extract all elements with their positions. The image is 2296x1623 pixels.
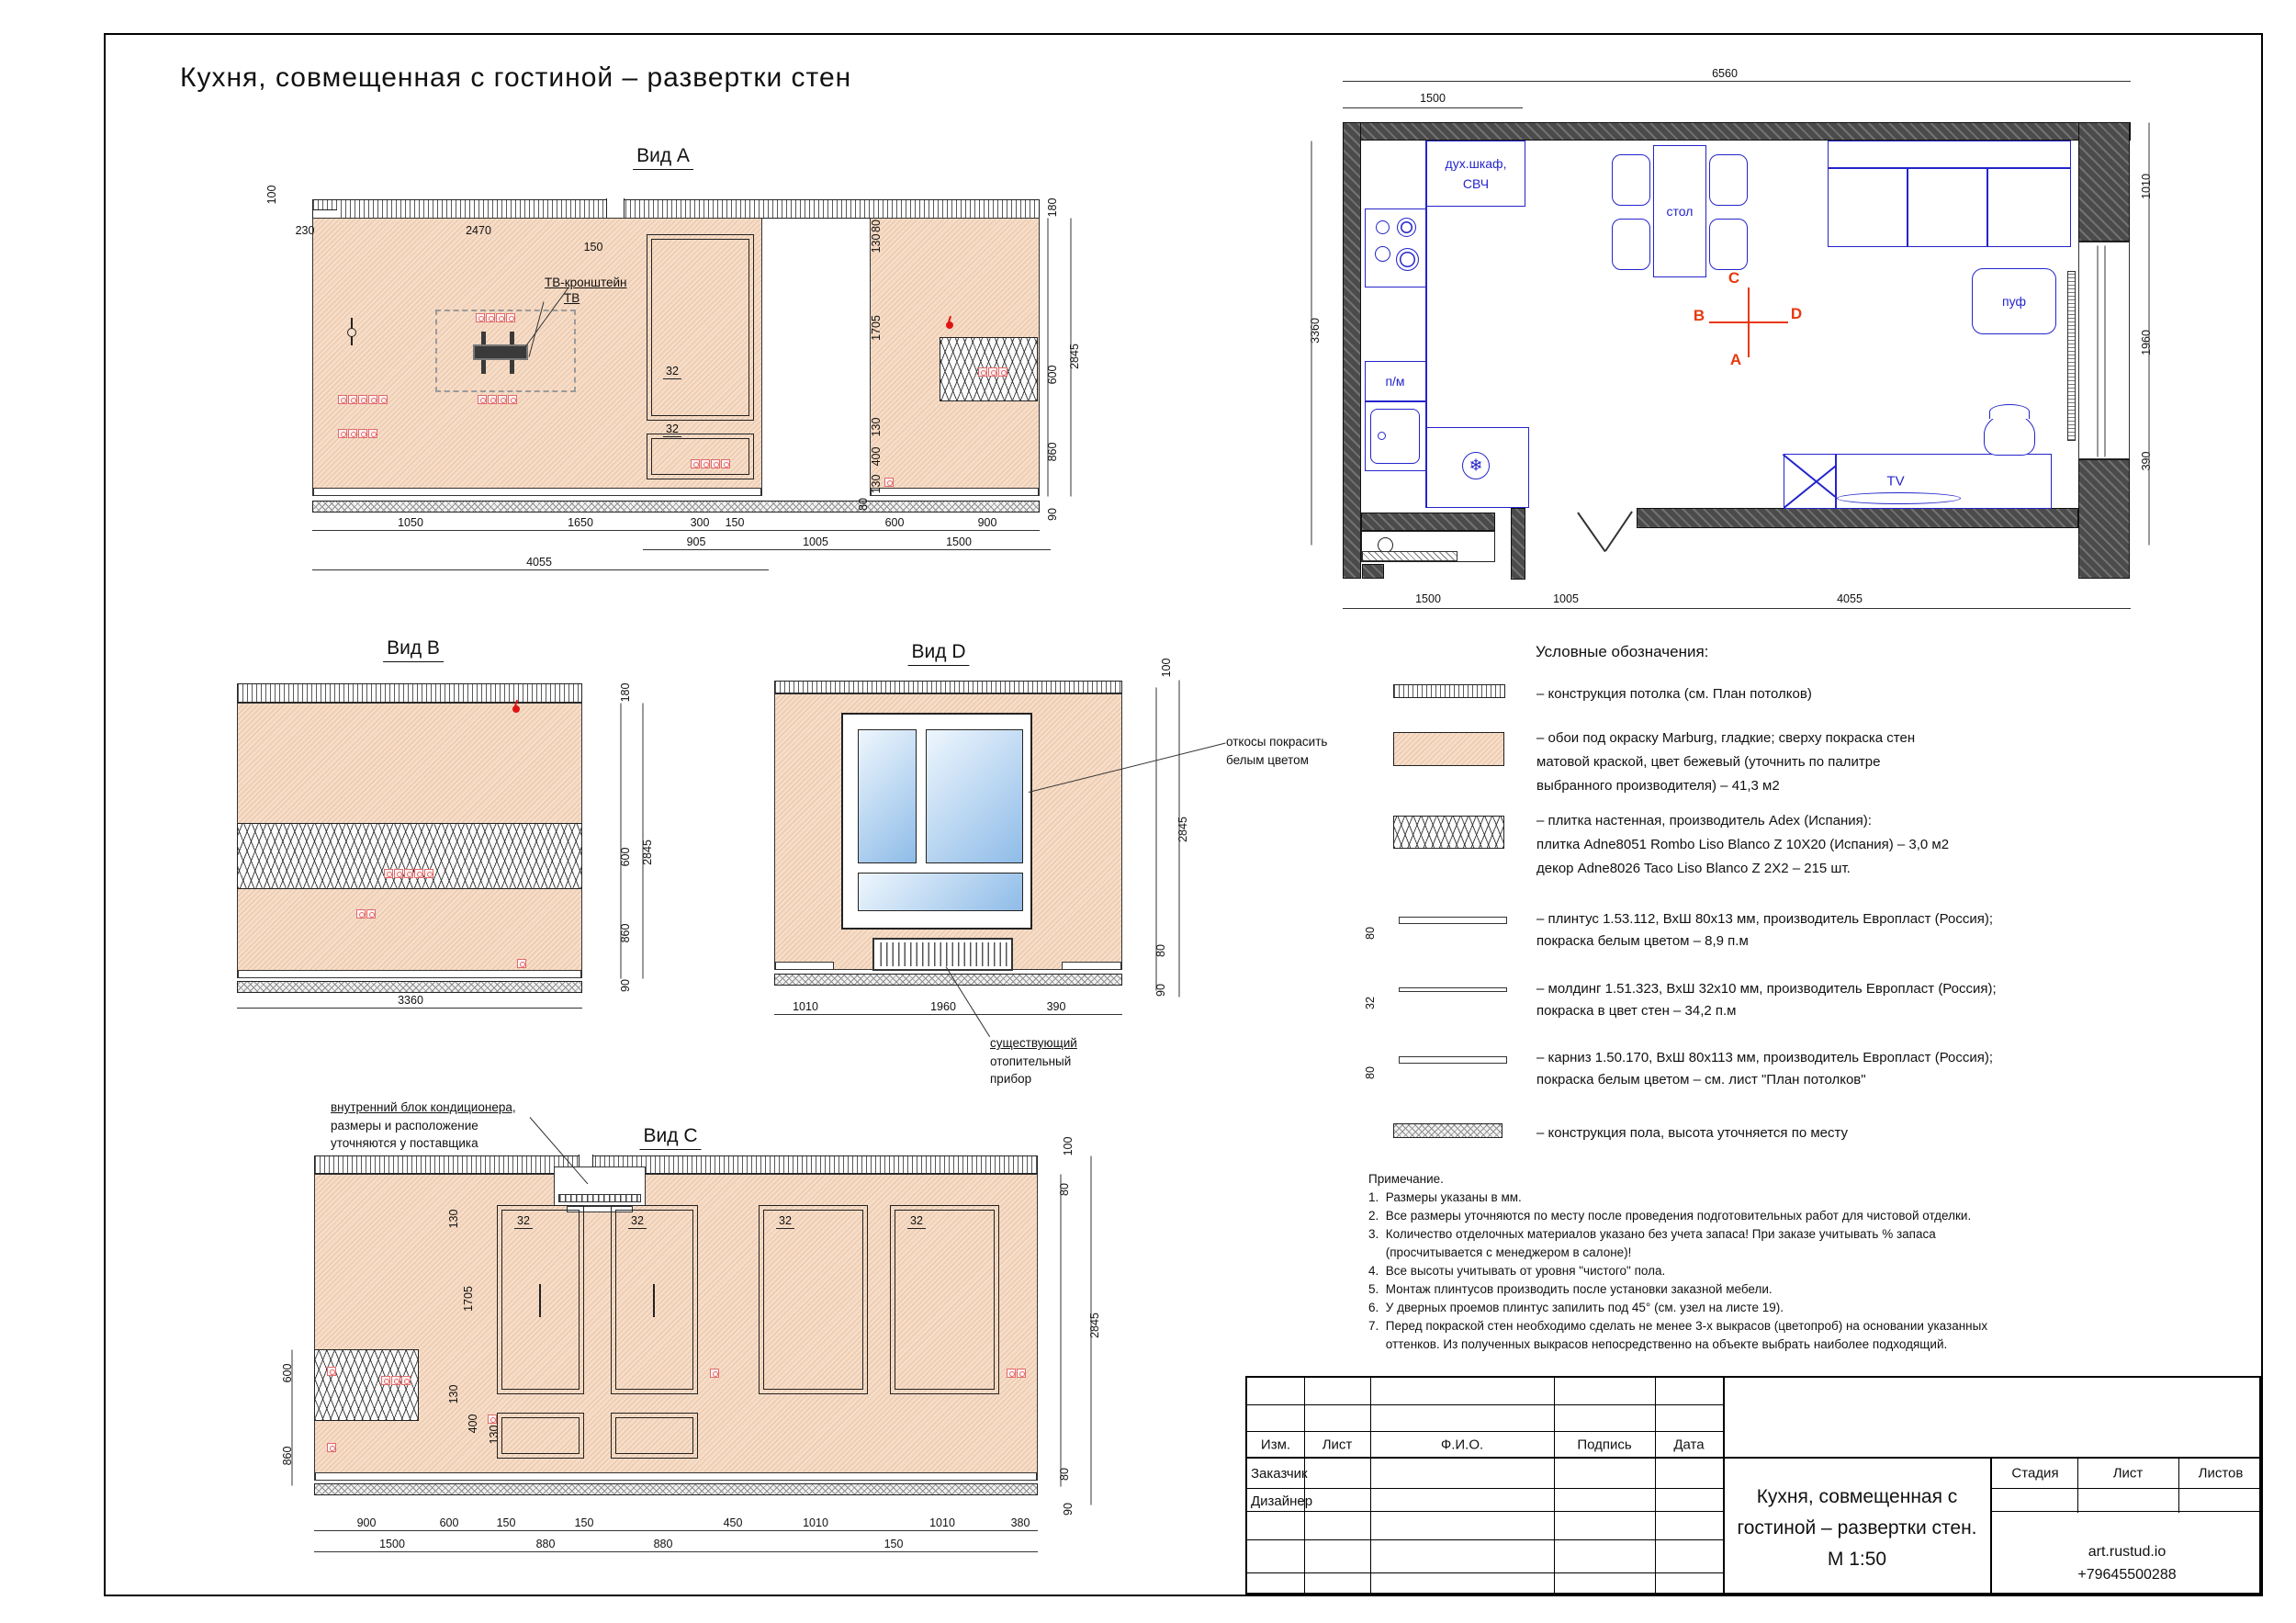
dim-label: 1010 (803, 1517, 828, 1528)
dim-label: 1705 (871, 315, 882, 341)
plan-chair (1612, 219, 1650, 270)
tb-list2: Лист (2113, 1466, 2144, 1482)
tb-project-title-1: Кухня, совмещенная с (1757, 1486, 1958, 1508)
plan-wall-left (1343, 122, 1361, 579)
dim-line (1343, 107, 1523, 108)
orientation-right: D (1791, 305, 1802, 323)
notes-block: Примечание.1. Размеры указаны в мм.2. Вс… (1368, 1170, 1987, 1354)
dim-label: 900 (357, 1517, 377, 1528)
dim-label: 80 (871, 220, 882, 232)
tb-izm: Изм. (1261, 1437, 1290, 1453)
legend-swatch-floor (1393, 1123, 1503, 1138)
view-b-floor (237, 981, 582, 993)
dim-line (1343, 81, 2131, 82)
legend-item: – карниз 1.50.170, ВхШ 80x113 мм, произв… (1536, 1047, 1993, 1091)
tb-list: Лист (1322, 1437, 1353, 1453)
dim-label: 1010 (2141, 174, 2152, 199)
view-b-ceiling (237, 683, 582, 703)
molding-frame (497, 1205, 584, 1394)
dim-label: 1960 (2141, 330, 2152, 355)
dim-label: 860 (1047, 443, 1058, 462)
dim-label: 860 (620, 924, 631, 943)
dim-label: 600 (440, 1517, 459, 1528)
plan-stool-back (1989, 404, 2030, 419)
socket-group (384, 869, 433, 878)
view-a-ceiling (312, 199, 1040, 219)
plan-table-label: стол (1667, 204, 1694, 219)
socket-group (978, 367, 1007, 377)
plan-stove (1365, 209, 1426, 287)
dim-label: 180 (620, 683, 631, 703)
tb-project-title-2: гостиной – развертки стен. (1737, 1517, 1976, 1539)
socket-group (381, 1376, 411, 1385)
socket-group (338, 395, 388, 404)
view-a-ceiling-slot (606, 198, 625, 219)
legend-item: – молдинг 1.51.323, ВхШ 32x10 мм, произв… (1536, 978, 1997, 1022)
tb-phone: +79645500288 (2077, 1567, 2176, 1584)
dim-label: 1010 (793, 1001, 818, 1012)
tb-listov: Листов (2199, 1466, 2244, 1482)
paint-marker-icon (512, 705, 520, 713)
tb-scale: М 1:50 (1828, 1549, 1886, 1571)
tb-dizainer: Дизайнер (1251, 1493, 1312, 1509)
dim-label: 80 (858, 498, 869, 511)
tb-fio: Ф.И.О. (1441, 1437, 1483, 1453)
dim-label: 400 (467, 1414, 478, 1434)
socket-group (710, 1369, 719, 1378)
plan-wall-top (1343, 122, 2131, 141)
dim-line (1061, 1175, 1062, 1487)
socket-group (1007, 1369, 1026, 1378)
dim-label: 2470 (466, 225, 491, 236)
dim-label: 600 (1047, 366, 1058, 385)
plan-window-glass (2098, 246, 2099, 457)
dim-line (774, 1014, 1122, 1015)
view-c-floor (314, 1483, 1038, 1495)
window-pane-right (926, 729, 1023, 863)
molding-frame (611, 1205, 698, 1394)
dim-label: 6560 (1712, 68, 1738, 79)
molding-frame (497, 1413, 584, 1459)
legend-item: – конструкция пола, высота уточняется по… (1536, 1122, 1848, 1144)
dim-label: 600 (620, 848, 631, 867)
orientation-down: A (1730, 351, 1741, 369)
plan-sofa-divider (1907, 167, 1908, 247)
view-d-plinth-right (1062, 962, 1121, 970)
dim-label: 150 (726, 517, 745, 528)
dim-label: 130 (871, 475, 882, 494)
stove-burner (1376, 220, 1390, 234)
molding-frame (647, 234, 754, 421)
plan-oven-label-1: дух.шкаф, (1446, 156, 1507, 171)
plan-tv-screen (1837, 492, 1961, 504)
dim-label: 80 (1365, 927, 1376, 940)
view-c-ceiling (314, 1155, 1038, 1174)
dim-label: 150 (497, 1517, 516, 1528)
molding-size-label: 32 (907, 1214, 926, 1229)
tb-data: Дата (1673, 1437, 1704, 1453)
socket-group (327, 1443, 336, 1452)
dim-label: 880 (536, 1538, 556, 1550)
dim-label: 390 (1047, 1001, 1066, 1012)
socket-group (356, 909, 376, 919)
dim-line (312, 569, 769, 570)
plan-wall-bottom-left (1361, 513, 1495, 531)
tb-zakazchik: Заказчик (1251, 1466, 1308, 1482)
molding-size-label: 32 (663, 365, 681, 379)
dim-label: 1010 (929, 1517, 955, 1528)
plan-sink-drain (1378, 432, 1386, 440)
dim-label: 1650 (568, 517, 593, 528)
molding-size-label: 32 (663, 423, 681, 437)
legend-item: – конструкция потолка (см. План потолков… (1536, 682, 1812, 706)
dim-line (314, 1530, 1038, 1531)
plan-radiator (2067, 271, 2076, 441)
dim-label: 600 (885, 517, 905, 528)
ac-unit-louver (558, 1194, 641, 1202)
tv-bracket-label: ТВ-кронштейн (545, 274, 627, 292)
dim-line (1156, 688, 1157, 991)
dim-label: 80 (1155, 944, 1166, 957)
dim-label: 1705 (463, 1286, 474, 1312)
dim-label: 380 (1011, 1517, 1030, 1528)
tb-site: art.rustud.io (2088, 1544, 2166, 1561)
dim-line (643, 549, 1051, 550)
dim-label: 1005 (803, 536, 828, 547)
window-pane-bottom (858, 873, 1023, 911)
dim-label: 3360 (398, 995, 423, 1006)
plan-chair (1709, 219, 1748, 270)
plan-dishwasher-label: п/м (1385, 374, 1404, 389)
plan-oven-cabinet (1426, 141, 1525, 207)
legend-item: – плинтус 1.53.112, ВхШ 80x13 мм, произв… (1536, 908, 1993, 952)
dim-line (314, 1551, 1038, 1552)
paint-marker-icon (946, 321, 953, 329)
dim-label: 1005 (1553, 593, 1579, 604)
plan-chair (1709, 154, 1748, 206)
view-d-ceiling (774, 681, 1122, 693)
legend-swatch-cornice (1399, 1056, 1507, 1064)
legend-swatch-wallpaper (1393, 732, 1504, 766)
dim-label: 1050 (398, 517, 423, 528)
switch-icon (351, 318, 353, 345)
dim-line (1048, 219, 1049, 497)
dim-label: 90 (1063, 1503, 1074, 1516)
tb-stadiya: Стадия (2011, 1466, 2058, 1482)
dim-line (312, 530, 1040, 531)
dim-line (1311, 141, 1312, 546)
plan-sofa (1828, 141, 2071, 247)
dim-label: 100 (266, 186, 277, 205)
orientation-up: C (1728, 269, 1739, 287)
molding-frame (890, 1205, 999, 1394)
dim-label: 900 (978, 517, 997, 528)
dim-label: 150 (584, 242, 603, 253)
dim-line (237, 1008, 582, 1009)
molding-size-label: 32 (628, 1214, 647, 1229)
title-block: Изм. Лист Ф.И.О. Подпись Дата Заказчик Д… (1245, 1376, 2261, 1595)
stove-burner (1375, 246, 1390, 262)
socket-group (327, 1367, 336, 1376)
plan-wall-bottom-right (1637, 508, 2078, 528)
dim-label: 4055 (526, 557, 552, 568)
dim-label: 905 (687, 536, 706, 547)
dim-label: 130 (448, 1210, 459, 1229)
plan-chair (1612, 154, 1650, 206)
view-c-plinth (315, 1472, 1037, 1481)
socket-group (884, 478, 894, 487)
dim-label: 32 (1365, 997, 1376, 1009)
plan-pouf-label: пуф (2002, 294, 2026, 309)
view-c-tile (314, 1349, 419, 1421)
dim-label: 880 (654, 1538, 673, 1550)
molding-frame (759, 1205, 868, 1394)
orientation-left: B (1694, 307, 1705, 325)
dim-label: 150 (884, 1538, 904, 1550)
dim-label: 2845 (642, 840, 653, 865)
view-d-plinth-left (775, 962, 834, 970)
dim-line (292, 1350, 293, 1486)
plan-stool (1984, 413, 2035, 456)
socket-group (488, 1414, 497, 1424)
dim-line (2149, 123, 2150, 546)
tv-console-div (1835, 454, 1837, 509)
dim-label: 150 (575, 1517, 594, 1528)
view-a-plinth-right (871, 488, 1039, 496)
dim-label: 100 (1161, 659, 1172, 678)
slopes-annotation: откосы покраситьбелым цветом (1226, 733, 1327, 769)
dim-label: 390 (2141, 452, 2152, 471)
page-title: Кухня, совмещенная с гостиной – развертк… (180, 62, 851, 94)
dim-line (1179, 681, 1180, 997)
dim-label: 230 (296, 225, 315, 236)
legend-item: – плитка настенная, производитель Adex (… (1536, 809, 1949, 881)
view-c-title: Вид C (640, 1125, 702, 1150)
socket-group (478, 395, 517, 404)
view-a-floor (312, 501, 1040, 513)
stove-burner (1397, 218, 1416, 237)
orientation-axis-line (1709, 321, 1788, 323)
dim-label: 100 (1063, 1137, 1074, 1156)
dim-label: 4055 (1837, 593, 1863, 604)
dim-label: 300 (691, 517, 710, 528)
dim-label: 130 (448, 1385, 459, 1404)
molding-size-label: 32 (776, 1214, 794, 1229)
dim-label: 1500 (946, 536, 972, 547)
legend-swatch-ceiling (1393, 684, 1505, 698)
drawing-sheet: Кухня, совмещенная с гостиной – развертк… (0, 0, 2296, 1623)
plan-sofa-divider (1986, 167, 1988, 247)
plan-pier-right-bottom (2078, 459, 2130, 579)
dim-line (1071, 219, 1072, 497)
plan-sofa-back (1828, 167, 2071, 169)
plan-pier-right-top (2078, 122, 2130, 242)
view-b-title: Вид B (383, 637, 444, 662)
plan-oven-label-2: СВЧ (1463, 176, 1489, 191)
dim-line (1091, 1156, 1092, 1505)
plan-pier-mid (1511, 508, 1525, 580)
window-pane-left (858, 729, 917, 863)
view-a-plinth-left (313, 488, 761, 496)
socket-group (476, 313, 515, 322)
molding-frame (647, 434, 754, 479)
tb-podpis: Подпись (1577, 1437, 1631, 1453)
socket-group (338, 429, 377, 438)
dim-line (643, 704, 644, 979)
dim-label: 180 (1047, 198, 1058, 218)
dim-label: 90 (1047, 508, 1058, 521)
ac-annotation: внутренний блок кондиционера,размеры и р… (331, 1099, 516, 1153)
legend-swatch-molding (1399, 987, 1507, 992)
stove-burner (1396, 248, 1419, 271)
dim-label: 80 (1365, 1066, 1376, 1079)
legend-swatch-tile (1393, 816, 1504, 849)
dim-label: 90 (1155, 984, 1166, 997)
dim-line (1343, 608, 2131, 609)
dim-label: 130 (871, 234, 882, 254)
view-b-tile (237, 823, 582, 889)
dim-label: 1500 (1420, 93, 1446, 104)
dim-label: 1960 (930, 1001, 956, 1012)
dim-label: 90 (620, 979, 631, 992)
plan-window-glass (2105, 246, 2106, 457)
molding-size-label: 32 (514, 1214, 533, 1229)
legend-item: – обои под окраску Marburg, гладкие; све… (1536, 727, 1915, 798)
dim-label: 450 (724, 1517, 743, 1528)
view-b-plinth (238, 970, 581, 978)
socket-group (691, 459, 730, 468)
snowflake-icon: ❄ (1469, 456, 1482, 476)
view-d-floor (774, 974, 1122, 986)
dim-label: 400 (871, 447, 882, 467)
tv-label: ТВ (564, 289, 580, 308)
plan-tv-label: TV (1886, 474, 1904, 490)
view-a-title: Вид A (633, 145, 693, 170)
legend-swatch-plinth (1399, 917, 1507, 924)
radiator-icon (872, 938, 1013, 971)
dim-line (621, 704, 622, 979)
dim-label: 1500 (1415, 593, 1441, 604)
dim-label: 130 (871, 418, 882, 437)
dim-label: 1500 (379, 1538, 405, 1550)
molding-frame (611, 1413, 698, 1459)
view-d-title: Вид D (908, 641, 970, 666)
radiator-annotation: существующийотопительныйприбор (990, 1034, 1077, 1088)
tv-bracket-icon (473, 332, 528, 374)
socket-group (517, 959, 526, 968)
plan-floor-hatch (1362, 551, 1458, 561)
legend-title: Условные обозначения: (1536, 641, 1708, 664)
plan-floor-block (1362, 564, 1384, 579)
